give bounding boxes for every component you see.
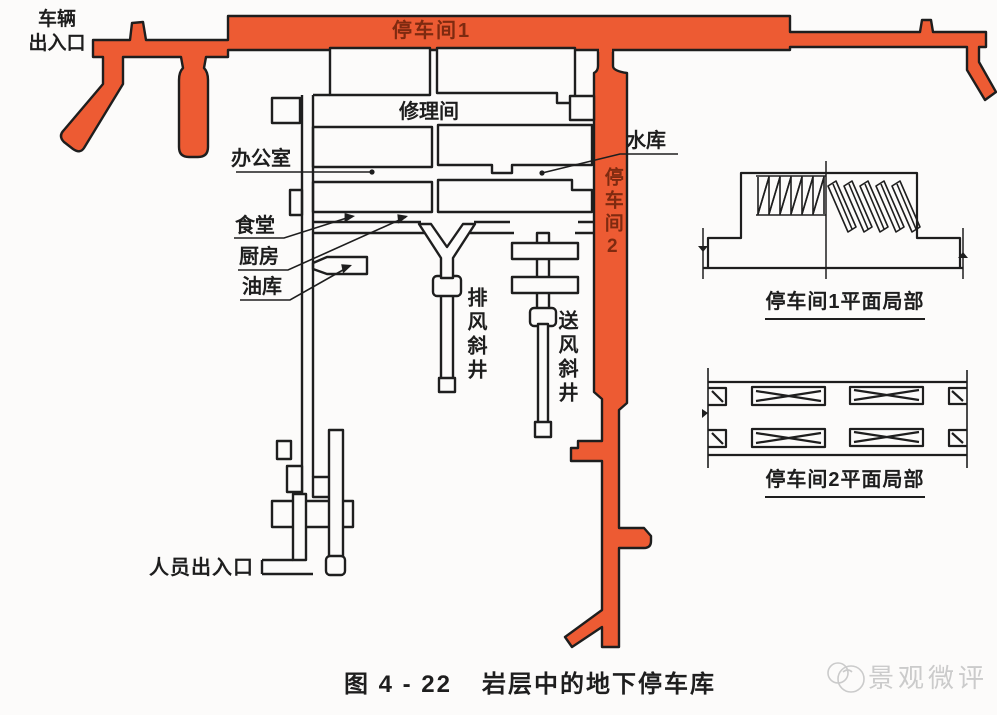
personnel-shaft-right xyxy=(329,430,343,558)
detail2-caption: 停车间2平面局部 xyxy=(765,469,924,498)
plan-drawing xyxy=(0,0,997,715)
room-office-left xyxy=(313,127,432,167)
canteen-label: 食堂 xyxy=(235,214,275,239)
parking-room-2-label: 停车间2 xyxy=(600,167,624,261)
supply-shaft-label: 送风斜井 xyxy=(553,310,578,406)
figure-title: 岩层中的地下停车库 xyxy=(482,671,716,698)
vehicle-entrance-line1: 车辆 xyxy=(18,8,96,32)
parking-room-1-label: 停车间1 xyxy=(392,19,471,44)
vehicle-entrance-label: 车辆 出入口 xyxy=(18,8,96,56)
room-top-right xyxy=(437,48,575,103)
detail1-caption: 停车间1平面局部 xyxy=(765,291,924,320)
personnel-room-a xyxy=(287,466,302,492)
repair-room-label: 修理间 xyxy=(399,100,459,125)
detail2-caption-wrap: 停车间2平面局部 xyxy=(740,468,950,493)
passage-to-corridor-top xyxy=(570,96,594,120)
vehicle-entrance-line2: 出入口 xyxy=(18,32,96,56)
room-canteen-left xyxy=(313,182,432,212)
kitchen-label: 厨房 xyxy=(239,245,279,270)
oil-depot-label: 油库 xyxy=(242,275,282,300)
detail1-caption-wrap: 停车间1平面局部 xyxy=(740,290,950,315)
tunnel-network xyxy=(61,16,996,647)
watermark-logo-icon xyxy=(828,663,864,692)
office-label: 办公室 xyxy=(231,147,291,172)
personnel-shaft-left xyxy=(293,494,306,560)
personnel-bulb xyxy=(326,556,345,575)
figure-caption: 图 4 - 22岩层中的地下停车库 xyxy=(280,670,780,700)
reservoir-label: 水库 xyxy=(626,129,666,154)
figure-page: 车辆 出入口 停车间1 停车间2 修理间 办公室 水库 食堂 厨房 油库 排风斜… xyxy=(0,0,997,715)
personnel-exit-passage xyxy=(262,560,313,574)
watermark-text: 景观微评 xyxy=(868,662,988,695)
exhaust-shaft-label: 排风斜井 xyxy=(462,287,487,383)
room-canteen-right xyxy=(438,180,592,212)
personnel-stub xyxy=(277,441,291,459)
niche-mid xyxy=(290,190,302,215)
figure-number: 图 4 - 22 xyxy=(344,671,452,698)
personnel-entrance-label: 人员出入口 xyxy=(149,556,254,581)
detail-parking2 xyxy=(702,368,967,468)
detail-parking1 xyxy=(698,161,968,279)
service-corridor-band xyxy=(313,222,594,233)
room-top-left xyxy=(330,48,430,95)
niche-top xyxy=(272,98,300,123)
